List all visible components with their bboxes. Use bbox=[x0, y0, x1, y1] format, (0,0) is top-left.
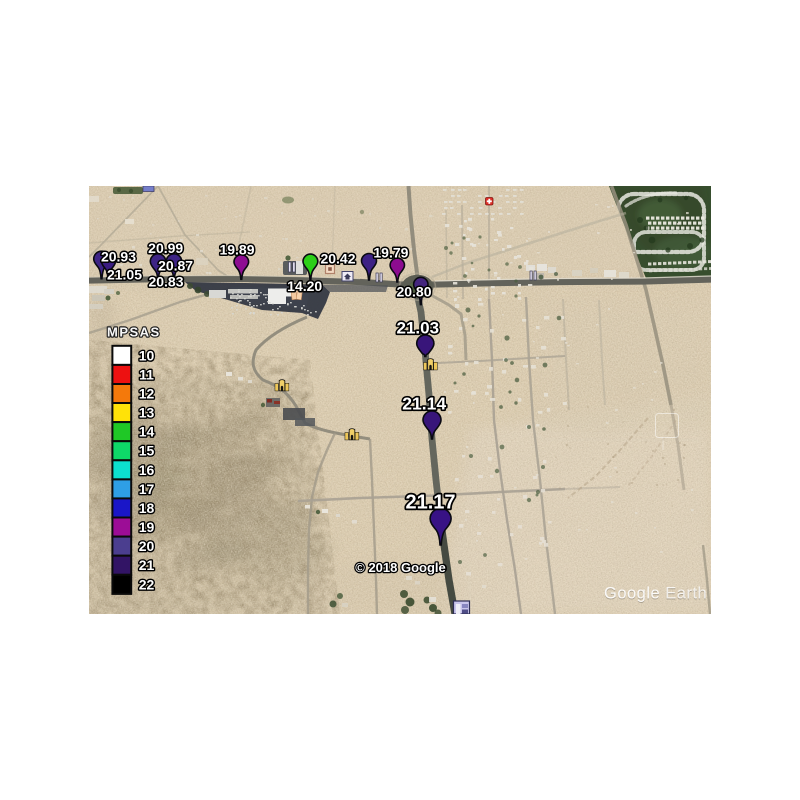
svg-text:10: 10 bbox=[139, 347, 155, 363]
svg-text:13: 13 bbox=[139, 405, 155, 421]
svg-text:20.99: 20.99 bbox=[148, 240, 183, 256]
svg-text:20: 20 bbox=[139, 538, 155, 554]
svg-text:14: 14 bbox=[139, 424, 155, 440]
svg-text:20.83: 20.83 bbox=[148, 274, 183, 290]
svg-text:20.87: 20.87 bbox=[158, 258, 193, 274]
svg-text:19: 19 bbox=[139, 519, 155, 535]
svg-text:12: 12 bbox=[139, 386, 155, 402]
svg-text:Google Earth: Google Earth bbox=[604, 585, 707, 603]
svg-text:20.93: 20.93 bbox=[101, 249, 136, 265]
svg-text:20.80: 20.80 bbox=[396, 284, 431, 300]
svg-text:11: 11 bbox=[139, 366, 154, 382]
svg-text:19.89: 19.89 bbox=[219, 242, 254, 258]
svg-text:22: 22 bbox=[139, 576, 155, 592]
svg-text:19.79: 19.79 bbox=[373, 245, 408, 261]
svg-text:21.05: 21.05 bbox=[107, 267, 142, 283]
svg-text:21.14: 21.14 bbox=[402, 393, 446, 413]
svg-text:21: 21 bbox=[139, 557, 155, 573]
svg-text:16: 16 bbox=[139, 462, 155, 478]
svg-text:© 2018 Google: © 2018 Google bbox=[355, 560, 446, 575]
svg-text:21.03: 21.03 bbox=[397, 318, 440, 337]
svg-text:18: 18 bbox=[139, 500, 155, 516]
svg-text:17: 17 bbox=[139, 481, 155, 497]
svg-text:14.20: 14.20 bbox=[287, 278, 322, 294]
svg-text:MPSAS: MPSAS bbox=[107, 325, 161, 340]
svg-text:15: 15 bbox=[139, 443, 155, 459]
svg-text:20.42: 20.42 bbox=[320, 251, 355, 267]
svg-text:21.17: 21.17 bbox=[405, 491, 455, 513]
